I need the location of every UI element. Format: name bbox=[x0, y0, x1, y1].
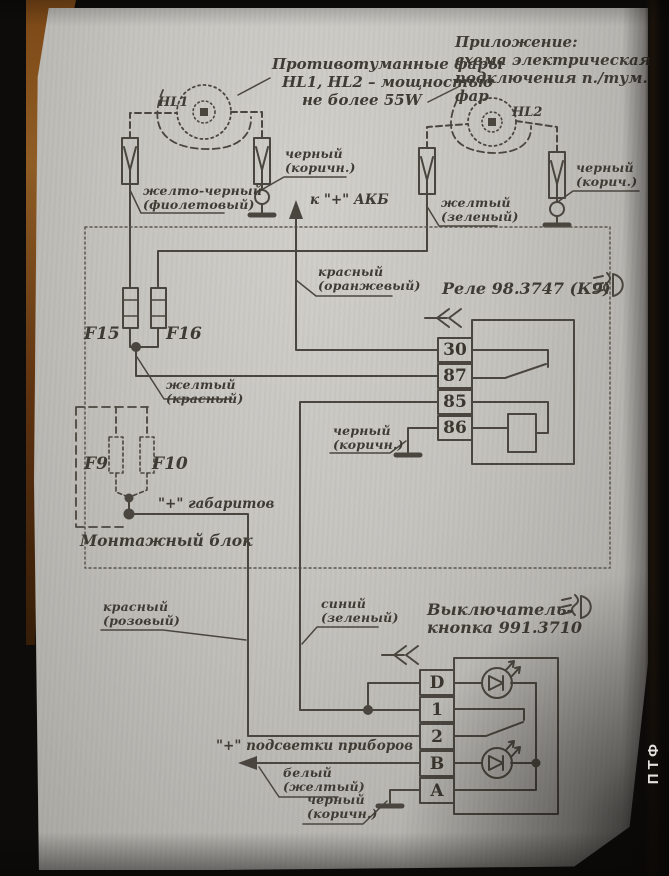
fuse-f9-label: F9 bbox=[84, 456, 108, 473]
fuse-f16-symbol bbox=[151, 288, 166, 328]
mounting-block-label: Монтажный блок bbox=[80, 533, 253, 549]
switch-terminal-1: 1 bbox=[420, 698, 454, 722]
wire-label-white-yellow: белый (желтый) bbox=[283, 766, 365, 793]
relay-terminal-87: 87 bbox=[438, 364, 472, 388]
ground-right-lamp bbox=[545, 198, 569, 225]
wire-label-red-orange: красный (оранжевый) bbox=[318, 265, 421, 292]
scanned-wiring-diagram-photo: Приложение: схема электрическая подключе… bbox=[0, 0, 669, 876]
switch-terminal-a: A bbox=[420, 779, 454, 803]
f9-f10-junction bbox=[116, 473, 147, 496]
wire-label-blue-green: синий (зеленый) bbox=[321, 597, 399, 624]
note-leader-hl1 bbox=[238, 78, 270, 95]
side-watermark: ПТФ bbox=[645, 740, 662, 784]
fuse-f15-label: F15 bbox=[84, 326, 120, 343]
wire-label-black-relay: черный (коричн.) bbox=[333, 424, 404, 451]
wire-label-yellow-red: желтый (красный) bbox=[166, 378, 243, 405]
wire-yellow-red-to-87 bbox=[136, 347, 438, 376]
instrument-light-label: "+" подсветки приборов bbox=[216, 739, 413, 754]
note-line3: не более 55W bbox=[302, 91, 503, 109]
parking-plus-label: "+" габаритов bbox=[158, 497, 274, 512]
wire-label-yellow-black: желто-черный (фиолетовый) bbox=[143, 184, 262, 211]
switch-title: Выключатель- кнопка 991.3710 bbox=[427, 601, 582, 637]
switch-terminal-b: B bbox=[420, 752, 454, 776]
fuse-f9-symbol bbox=[109, 437, 123, 473]
wire-label-black-right: черный (корич.) bbox=[576, 161, 637, 188]
illumination-arrow-head bbox=[238, 756, 257, 770]
fuse-f16-label: F16 bbox=[166, 326, 202, 343]
lamp-hl1-label: HL1 bbox=[158, 96, 188, 109]
switch-terminal-d: D bbox=[420, 671, 454, 695]
wire-label-black-switch: черный (коричн.) bbox=[307, 793, 378, 820]
relay-title: Реле 98.3747 (К9) bbox=[442, 280, 610, 298]
relay-connector-mark bbox=[425, 309, 461, 327]
switch-terminal-2: 2 bbox=[420, 725, 454, 749]
note-line1: Противотуманные фары bbox=[272, 55, 503, 73]
fuse-f15-symbol bbox=[123, 288, 138, 328]
to-battery-label: к "+" АКБ bbox=[310, 193, 389, 208]
fuse-f10-label: F10 bbox=[152, 456, 188, 473]
battery-arrow-head bbox=[289, 200, 303, 219]
wire-label-yellow-green: желтый (зеленый) bbox=[441, 196, 519, 223]
lamp-power-note: Противотуманные фары HL1, HL2 – мощность… bbox=[272, 55, 503, 109]
note-line2: HL1, HL2 – мощностью bbox=[282, 73, 503, 91]
relay-terminal-86: 86 bbox=[438, 416, 472, 440]
wire-label-red-pink: красный (розовый) bbox=[103, 600, 180, 627]
wire-label-black-left: черный (коричн.) bbox=[285, 147, 356, 174]
switch-connector-mark bbox=[382, 646, 418, 664]
relay-terminal-85: 85 bbox=[438, 390, 472, 414]
lamp-hl2-label: HL2 bbox=[512, 106, 542, 119]
appendix-line1: Приложение: bbox=[455, 33, 669, 51]
jumper-to-terminal-d bbox=[368, 683, 420, 710]
relay-terminal-30: 30 bbox=[438, 338, 472, 362]
